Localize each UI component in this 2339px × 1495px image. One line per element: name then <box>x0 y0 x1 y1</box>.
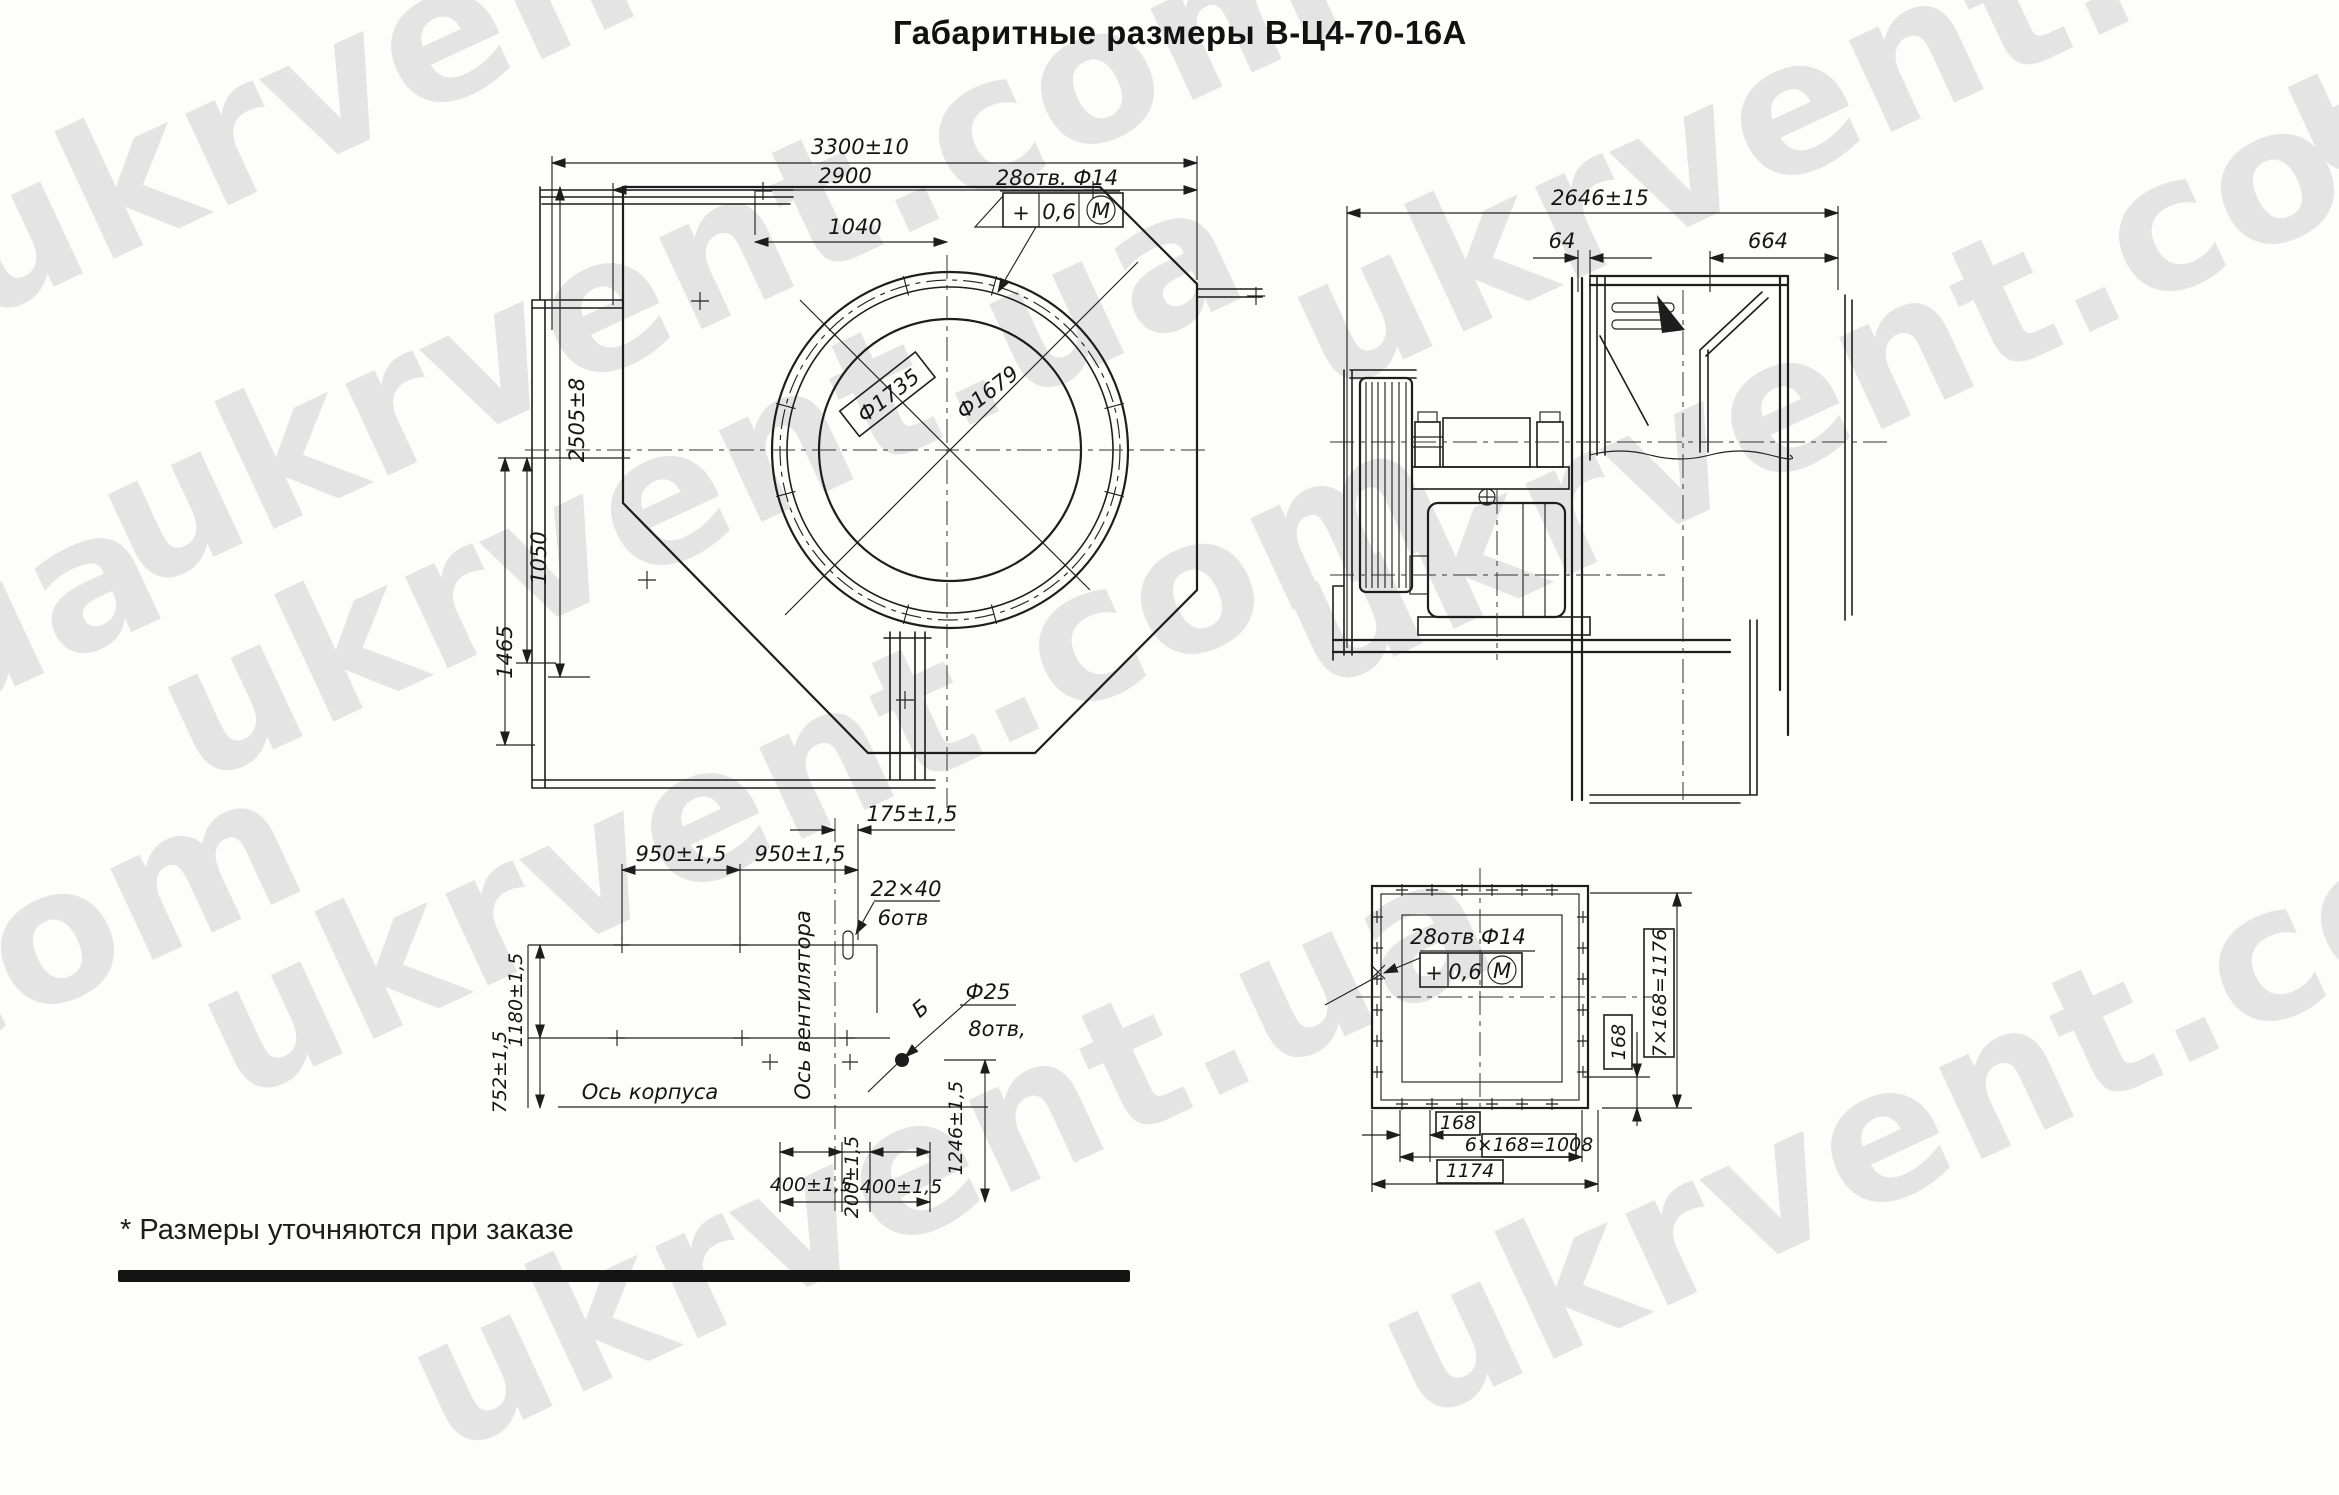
hole-marks <box>609 937 858 1070</box>
inlet-diameter-label: Ф1679 <box>952 361 1023 424</box>
svg-text:168: 168 <box>1608 1024 1630 1060</box>
svg-text:752±1,5: 752±1,5 <box>489 1031 511 1113</box>
flange-tol-symbol: + <box>1425 961 1443 985</box>
tolerance-symbol: + <box>1012 201 1030 225</box>
dim-175: 175±1,5 <box>866 802 957 826</box>
mounting-plan: 175±1,5 950±1,5 950±1,5 22×40 6отв Ф25 8… <box>489 802 1026 1218</box>
svg-text:Ось вентилятора: Ось вентилятора <box>791 910 815 1099</box>
inlet-wedge <box>1657 295 1685 333</box>
outlet-flange-edge <box>1845 295 1852 620</box>
dim-168-vertical: 168 <box>1604 1015 1632 1069</box>
bolt-circle-label: Ф1735 <box>840 352 935 436</box>
belt-guard <box>1360 378 1412 592</box>
dim-2646: 2646±15 <box>1551 186 1649 210</box>
hole-dia-label: Ф25 <box>966 980 1011 1004</box>
dim-3300: 3300±10 <box>811 135 909 159</box>
page-title: Габаритные размеры В-Ц4-70-16А <box>893 14 1467 52</box>
scan-artifact-bar <box>118 1270 1130 1282</box>
dim-7x168: 7×168=1176 <box>1644 929 1674 1058</box>
flange-tol-modifier: М <box>1493 959 1511 983</box>
axis-fan-label: Ось вентилятора <box>791 910 815 1099</box>
dim-664: 664 <box>1748 229 1788 253</box>
tolerance-frame: + 0,6 М <box>975 193 1123 292</box>
flange-view: 28отв Ф14 + 0,6 М 7×168=1176 168 <box>1325 868 1692 1192</box>
dim-1040: 1040 <box>828 215 881 239</box>
tolerance-value: 0,6 <box>1042 200 1075 224</box>
hole-count-label: 8отв, <box>968 1017 1026 1041</box>
dim-2505: 2505±8 <box>565 378 589 462</box>
dim-168-bottom: 168 <box>1436 1112 1480 1135</box>
technical-drawing: 3300±10 2900 1040 28отв. Ф14 + 0,6 М Ф17… <box>0 0 2339 1282</box>
svg-text:Ф1679: Ф1679 <box>952 361 1023 424</box>
svg-text:7×168=1176: 7×168=1176 <box>1649 929 1671 1058</box>
dim-2900: 2900 <box>818 164 871 188</box>
bolt-plus-marks <box>638 181 1265 709</box>
dim-64: 64 <box>1549 229 1576 253</box>
dim-1174: 1174 <box>1437 1160 1503 1183</box>
back-plate <box>1572 278 1582 800</box>
dim-752: 752±1,5 <box>489 1031 511 1113</box>
tolerance-modifier: М <box>1092 199 1110 223</box>
dim-1246: 1246±1,5 <box>945 1081 967 1176</box>
holes-note: 28отв. Ф14 <box>996 166 1118 190</box>
front-view: 3300±10 2900 1040 28отв. Ф14 + 0,6 М Ф17… <box>493 135 1265 808</box>
dim-1465: 1465 <box>493 625 517 678</box>
svg-text:1174: 1174 <box>1446 1160 1494 1182</box>
svg-text:168: 168 <box>1440 1112 1476 1134</box>
scroll-outline <box>1590 276 1788 735</box>
flange-tolerance-frame: + 0,6 М <box>1420 953 1522 987</box>
axis-body-label: Ось корпуса <box>582 1080 719 1104</box>
dim-950-left: 950±1,5 <box>635 842 726 866</box>
svg-text:Б: Б <box>907 995 933 1023</box>
dim-400-right: 400±1,5 <box>860 1176 942 1198</box>
footnote: * Размеры уточняются при заказе <box>120 1214 574 1247</box>
slot-count-label: 6отв <box>878 906 929 930</box>
flange-holes-note: 28отв Ф14 <box>1410 925 1526 949</box>
svg-text:6×168=1008: 6×168=1008 <box>1465 1134 1594 1156</box>
svg-text:1465: 1465 <box>493 625 517 678</box>
view-label-b: Б <box>907 995 933 1023</box>
dim-400-left: 400±1,5 <box>770 1174 852 1196</box>
svg-text:1246±1,5: 1246±1,5 <box>945 1081 967 1176</box>
base-frame <box>1333 640 1730 652</box>
svg-text:2505±8: 2505±8 <box>565 378 589 462</box>
side-view: 2646±15 64 664 <box>1330 186 1888 803</box>
dim-950-right: 950±1,5 <box>754 842 845 866</box>
svg-text:1050: 1050 <box>527 531 551 584</box>
dim-1050: 1050 <box>527 531 551 584</box>
flange-tol-value: 0,6 <box>1448 960 1481 984</box>
dim-6x168: 6×168=1008 <box>1465 1134 1594 1157</box>
slot-size-label: 22×40 <box>870 877 941 901</box>
fan-housing-outline <box>623 187 1197 753</box>
